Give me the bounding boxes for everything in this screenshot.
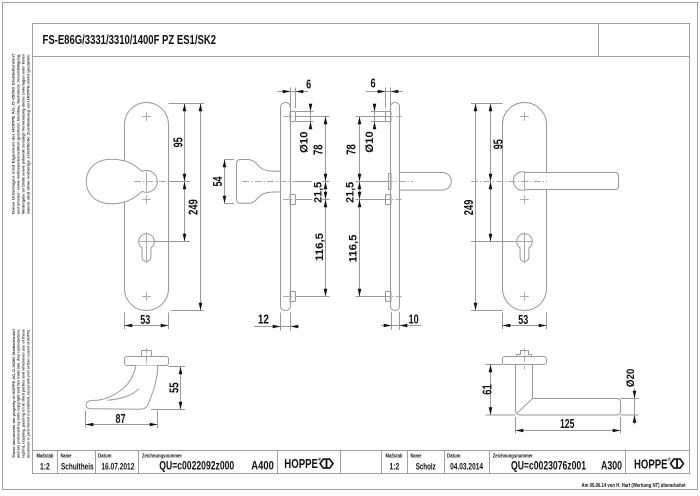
svg-text:87: 87 bbox=[116, 412, 126, 426]
svg-text:Datum: Datum bbox=[447, 454, 461, 460]
svg-text:Ø10: Ø10 bbox=[299, 132, 311, 154]
svg-text:documents or parts thereof is: documents or parts thereof is prohibited… bbox=[26, 329, 31, 458]
svg-text:Name: Name bbox=[61, 454, 72, 460]
svg-text:249: 249 bbox=[462, 200, 476, 216]
svg-text:12: 12 bbox=[258, 312, 269, 326]
svg-text:21,5: 21,5 bbox=[344, 181, 356, 203]
svg-text:1:2: 1:2 bbox=[390, 461, 400, 471]
svg-text:78: 78 bbox=[311, 144, 325, 155]
svg-text:53: 53 bbox=[518, 313, 528, 327]
svg-text:HOPPE: HOPPE bbox=[284, 457, 318, 471]
svg-text:6: 6 bbox=[306, 78, 311, 92]
svg-text:95: 95 bbox=[171, 137, 185, 147]
svg-text:FS-E86G/3331/3310/1400F PZ ES1: FS-E86G/3331/3310/1400F PZ ES1/SK2 bbox=[43, 32, 217, 47]
svg-text:QU=c0023076z001: QU=c0023076z001 bbox=[511, 459, 586, 473]
svg-text:A300: A300 bbox=[601, 459, 622, 473]
svg-text:61: 61 bbox=[480, 384, 494, 395]
svg-text:Datum: Datum bbox=[98, 454, 112, 460]
svg-text:116,5: 116,5 bbox=[314, 232, 326, 261]
svg-text:Ø20: Ø20 bbox=[625, 369, 637, 388]
svg-text:Am 05.06.14 von H. Harf (Werbu: Am 05.06.14 von H. Harf (Werbung NT) übe… bbox=[582, 483, 686, 489]
svg-text:125: 125 bbox=[560, 417, 575, 431]
svg-text:95: 95 bbox=[491, 139, 505, 149]
svg-text:HOPPE: HOPPE bbox=[634, 457, 668, 471]
svg-text:10: 10 bbox=[409, 312, 419, 326]
svg-text:Name: Name bbox=[411, 454, 422, 460]
svg-text:1:2: 1:2 bbox=[40, 461, 50, 471]
svg-text:Ø10: Ø10 bbox=[364, 131, 376, 153]
svg-text:Scholz: Scholz bbox=[416, 461, 436, 471]
svg-text:55: 55 bbox=[168, 382, 182, 393]
svg-text:21,5: 21,5 bbox=[312, 181, 324, 203]
svg-text:53: 53 bbox=[140, 313, 150, 327]
svg-text:Schultheis: Schultheis bbox=[61, 461, 94, 471]
svg-text:04.03.2014: 04.03.2014 bbox=[450, 461, 483, 471]
svg-text:116,5: 116,5 bbox=[348, 234, 360, 263]
svg-text:QU=c0022092z000: QU=c0022092z000 bbox=[159, 459, 234, 473]
svg-text:Maßstab: Maßstab bbox=[37, 454, 54, 460]
svg-text:16.07.2012: 16.07.2012 bbox=[101, 461, 134, 471]
svg-text:78: 78 bbox=[344, 144, 358, 155]
svg-text:6: 6 bbox=[370, 77, 375, 91]
svg-text:Maßstab: Maßstab bbox=[386, 454, 403, 460]
svg-text:A400: A400 bbox=[251, 459, 274, 473]
svg-text:249: 249 bbox=[187, 199, 201, 215]
svg-text:davon sind ohne vorherige schr: davon sind ohne vorherige schriftliche Z… bbox=[25, 54, 30, 214]
svg-text:54: 54 bbox=[211, 177, 225, 187]
